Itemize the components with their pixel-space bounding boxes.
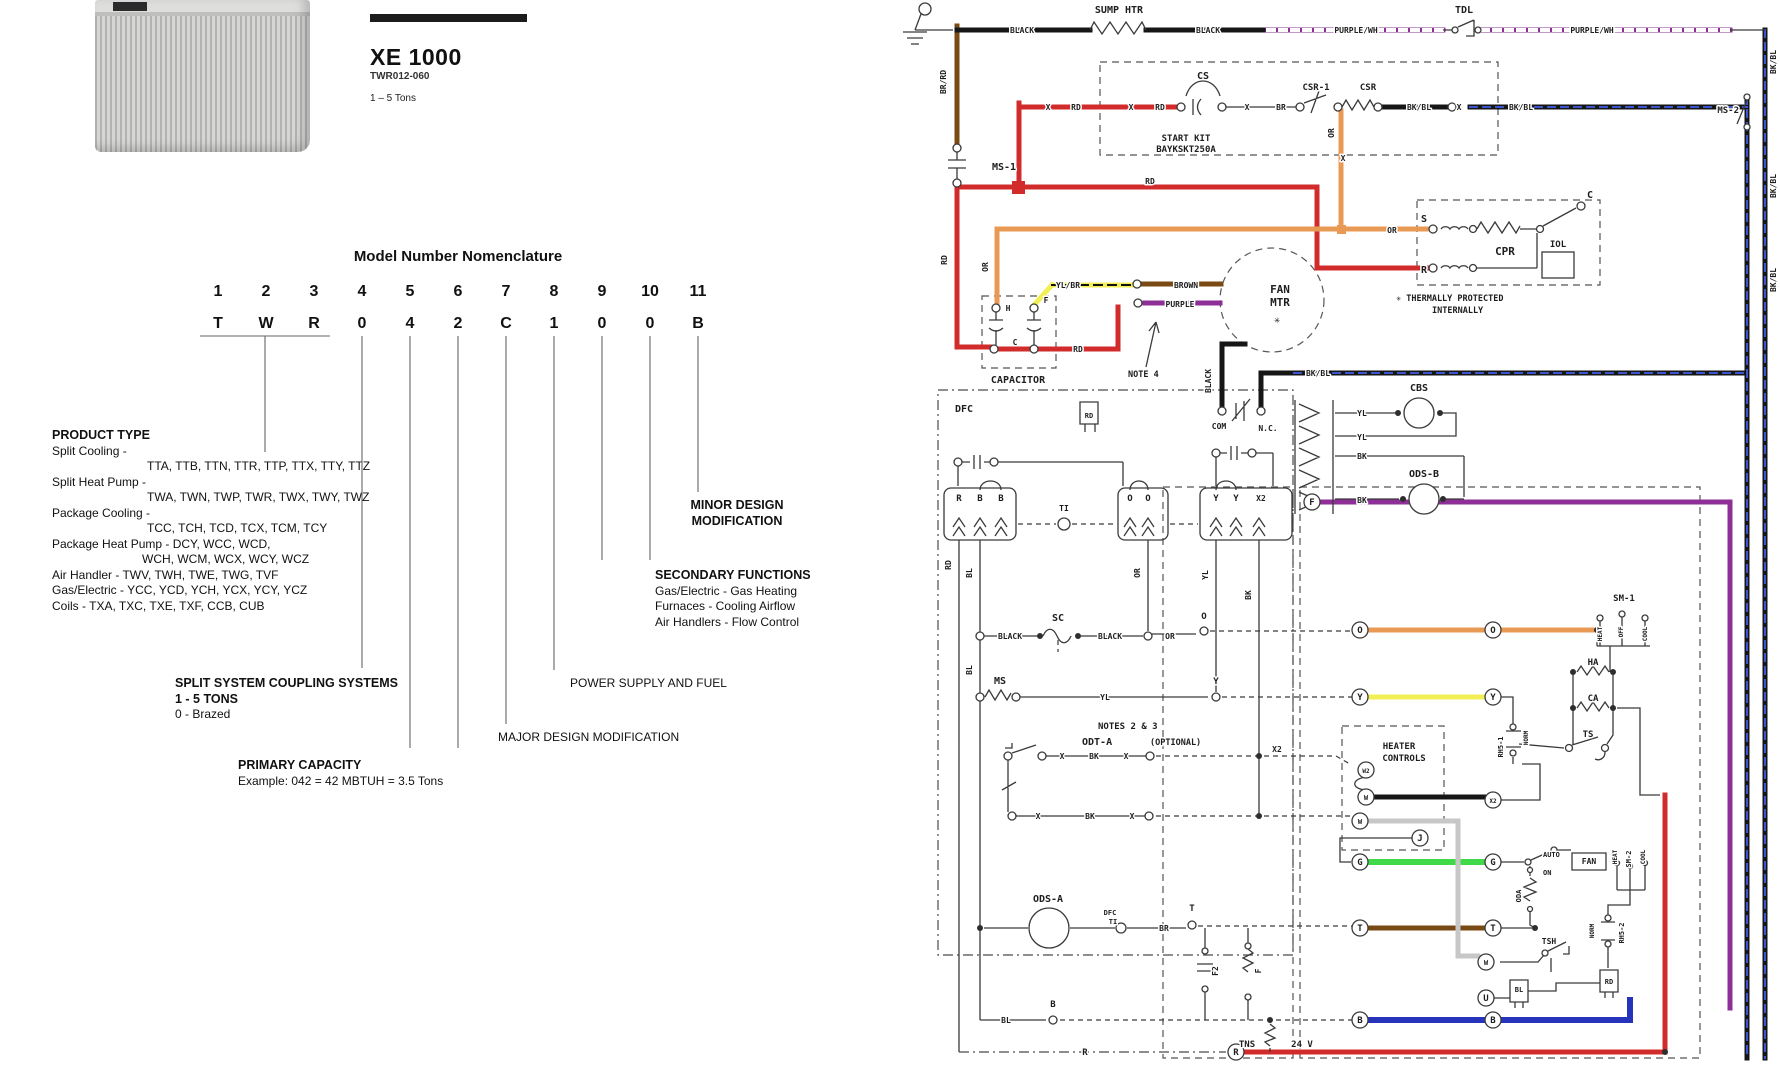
nomenclature-character: C	[500, 315, 512, 332]
diagram-label-iol: IOL	[1550, 240, 1567, 250]
terminal-circle	[1452, 27, 1458, 33]
junction-dot	[1037, 633, 1043, 639]
diagram-label-or: OR	[981, 262, 990, 272]
nomenclature-character: 0	[598, 315, 607, 332]
diagram-label-norm: NORM	[1589, 923, 1596, 938]
diagram-label-fan: FAN	[1582, 857, 1597, 866]
terminal-circle	[1012, 693, 1020, 701]
dfc-box	[938, 390, 1293, 955]
diagram-label-bk: BK	[1085, 812, 1095, 821]
diagram-label-x: X	[1036, 812, 1041, 821]
diagram-label-ca: CA	[1588, 694, 1599, 704]
terminal-circle	[1404, 398, 1434, 428]
diagram-label-purple-wh: PURPLE/WH	[1570, 26, 1614, 35]
terminal-circle	[1374, 103, 1382, 111]
terminal-circle	[1212, 693, 1220, 701]
diagram-label-ts: TS	[1583, 730, 1594, 740]
nomenclature-character: B	[692, 315, 704, 332]
diagram-label-bk-bl: BK/BL	[1509, 103, 1533, 112]
terminal-circle	[1744, 94, 1750, 100]
diagram-label-o: O	[1490, 626, 1496, 636]
terminal-circle	[1146, 752, 1154, 760]
diagram-label-o: O	[1145, 494, 1151, 504]
diagram-label-sm-2: SM-2	[1625, 851, 1633, 868]
diagram-label-x2: X2	[1489, 798, 1497, 805]
power-wires	[957, 26, 1765, 1058]
diagram-label-bk: BK	[1089, 752, 1099, 761]
terminal-circle	[1248, 449, 1256, 457]
wiring-diagram: 1T2W3R4054627C819010011B	[0, 0, 1780, 1066]
diagram-labels: BR/RDBLACKSUMP HTRBLACKPURPLE/WHTDLPURPL…	[939, 5, 1778, 1060]
nomenclature-character: 0	[646, 315, 655, 332]
nomenclature-position-number: 6	[454, 283, 463, 300]
terminal-circle	[1030, 304, 1038, 312]
diagram-label-ha: HA	[1588, 658, 1599, 668]
terminal-circle	[976, 693, 984, 701]
terminal-circle	[1245, 943, 1251, 949]
terminal-circle	[1004, 752, 1012, 760]
diagram-label-tns: TNS	[1239, 1040, 1255, 1050]
nomenclature-character: T	[213, 315, 223, 332]
diagram-label-x2: X2	[1272, 745, 1282, 754]
diagram-label-fan: FAN	[1270, 283, 1290, 296]
diagram-label-cbs: CBS	[1410, 383, 1428, 394]
diagram-label-or: OR	[1165, 632, 1175, 641]
diagram-label-g: G	[1490, 858, 1495, 868]
diagram-label-x: X	[1060, 752, 1065, 761]
terminal-circle	[1525, 859, 1531, 865]
nomenclature-position-number: 3	[310, 283, 319, 300]
nomenclature-character: 0	[358, 315, 367, 332]
diagram-label-ti: TI	[1109, 918, 1117, 926]
diagram-label-x2: X2	[1256, 494, 1266, 503]
terminal-circle	[1218, 407, 1226, 415]
terminal-circle	[1177, 103, 1185, 111]
diagram-label-x: X	[1457, 103, 1462, 112]
diagram-label-bk: BK	[1357, 452, 1367, 461]
diagram-label-yl-br: YL/BR	[1056, 281, 1080, 290]
terminal-circle	[1245, 994, 1251, 1000]
diagram-label-notes-2-3: NOTES 2 & 3	[1098, 722, 1158, 732]
diagram-label-u: U	[1483, 994, 1488, 1004]
nomenclature-position-number: 4	[358, 283, 367, 300]
diagram-label-yl: YL	[1357, 409, 1367, 418]
diagram-label-rh5-2: RH5-2	[1618, 922, 1626, 943]
diagram-label-w2: W2	[1362, 768, 1370, 775]
diagram-label-f: F	[1254, 968, 1263, 973]
diagram-label-yl: YL	[1201, 570, 1210, 580]
diagram-label-tsh: TSH	[1542, 937, 1557, 946]
nomenclature-position-number: 11	[690, 283, 707, 300]
terminal-circle	[990, 458, 998, 466]
diagram-label-odt-a: ODT-A	[1082, 737, 1112, 748]
diagram-label-y: Y	[1357, 693, 1363, 703]
diagram-label-csr: CSR	[1360, 83, 1377, 93]
diagram-label-x: X	[1046, 103, 1051, 112]
diagram-label-y: Y	[1490, 693, 1496, 703]
diagram-label-controls: CONTROLS	[1382, 754, 1425, 764]
junction-dot	[977, 925, 983, 931]
iol-block	[1542, 252, 1574, 278]
diagram-label-ods-a: ODS-A	[1033, 894, 1063, 905]
terminal-circle	[953, 144, 961, 152]
diagram-label-bl: BL	[1515, 986, 1523, 994]
diagram-label-o: O	[1357, 626, 1363, 636]
diagram-label-or: OR	[1387, 226, 1397, 235]
terminal-circle	[1429, 225, 1437, 233]
junction-dot	[1662, 1049, 1668, 1055]
diagram-label-t: T	[1357, 924, 1363, 934]
diagram-label-x: X	[1341, 154, 1346, 163]
diagram-label-baykskt250a: BAYKSKT250A	[1156, 145, 1216, 155]
terminal-circle	[1542, 950, 1548, 956]
diagram-label-x: X	[1245, 103, 1250, 112]
nomenclature-connectors	[200, 336, 698, 748]
diagram-label-black: BLACK	[998, 632, 1022, 641]
diagram-label-bk: BK	[1244, 590, 1253, 600]
diagram-label-black: BLACK	[1204, 369, 1213, 393]
nomenclature-character: R	[308, 315, 320, 332]
terminal-circle	[1510, 750, 1516, 756]
diagram-label-rd: RD	[1071, 103, 1081, 112]
diagram-label-or: OR	[1327, 128, 1336, 138]
diagram-label-r: R	[956, 494, 962, 504]
nomenclature-character: W	[258, 315, 274, 332]
diagram-label-y: Y	[1233, 494, 1239, 504]
diagram-label-br: BR	[1276, 103, 1286, 112]
terminal-circle	[990, 345, 998, 353]
diagram-label-y: Y	[1213, 677, 1219, 687]
diagram-label-x: X	[1129, 103, 1134, 112]
diagram-label-ms-2: MS-2	[1717, 106, 1739, 116]
terminal-circle	[1510, 724, 1516, 730]
terminal-circle	[992, 304, 1000, 312]
diagram-label-cs: CS	[1197, 71, 1209, 82]
diagram-label-off: OFF	[1618, 626, 1625, 637]
terminal-blocks	[944, 488, 1292, 948]
diagram-label-f: F	[1044, 296, 1049, 305]
junction-dot	[1075, 633, 1081, 639]
diagram-label-bk-bl: BK/BL	[1769, 174, 1778, 198]
terminal-circle	[1605, 941, 1611, 947]
diagram-label-ms: MS	[994, 676, 1006, 687]
terminal-circle	[1202, 986, 1208, 992]
junction-dot	[1570, 705, 1576, 711]
terminal-circle	[1030, 345, 1038, 353]
terminal-circle	[1334, 103, 1342, 111]
diagram-label-purple-wh: PURPLE/WH	[1334, 26, 1378, 35]
diagram-label-dfc: DFC	[955, 404, 973, 415]
terminal-circle	[1049, 1016, 1057, 1024]
diagram-label-oda: ODA	[1515, 889, 1523, 902]
diagram-label-bk-bl: BK/BL	[1407, 103, 1431, 112]
diagram-label-b: B	[998, 494, 1004, 504]
diagram-label-h: H	[1006, 304, 1011, 313]
nomenclature-position-number: 1	[214, 283, 223, 300]
nomenclature-position-number: 7	[502, 283, 511, 300]
diagram-label-black: BLACK	[1010, 26, 1034, 35]
diagram-label-bk: BK	[1357, 496, 1367, 505]
diagram-label-heater: HEATER	[1383, 742, 1416, 752]
diagram-label-sc: SC	[1052, 613, 1064, 624]
diagram-label-f2: F2	[1211, 966, 1220, 976]
diagram-label-b: B	[1357, 1016, 1363, 1026]
diagram-label-ti: TI	[1059, 504, 1069, 513]
diagram-label-rd: RD	[1605, 978, 1613, 986]
diagram-label--thermally-protected: ✳ THERMALLY PROTECTED	[1396, 294, 1503, 304]
diagram-label-o: O	[1201, 612, 1207, 622]
nomenclature-position-number: 9	[598, 283, 607, 300]
diagram-label-black: BLACK	[1196, 26, 1220, 35]
terminal-circle	[1470, 265, 1477, 272]
diagram-label-sm-1: SM-1	[1613, 594, 1635, 604]
terminal-circle	[1212, 449, 1220, 457]
nomenclature-character: 4	[406, 315, 415, 332]
diagram-label-bk-bl: BK/BL	[1769, 50, 1778, 74]
junction-dot	[1610, 705, 1616, 711]
diagram-label-bl: BL	[965, 665, 974, 675]
lowvolt-strip-box	[1163, 487, 1293, 1058]
diagram-label-t: T	[1490, 924, 1496, 934]
terminal-circle	[1257, 407, 1265, 415]
junction-dot	[1395, 410, 1401, 416]
diagram-label-mtr: MTR	[1270, 296, 1290, 309]
terminal-circle	[1188, 921, 1196, 929]
terminal-circle	[1528, 868, 1533, 873]
diagram-label-heat: HEAT	[1612, 849, 1619, 864]
diagram-label-on: ON	[1543, 869, 1551, 877]
terminal-circle	[1296, 103, 1304, 111]
diagram-label-yl: YL	[1100, 693, 1110, 702]
diagram-label-t: T	[1189, 904, 1195, 914]
diagram-label-rd: RD	[1145, 177, 1155, 186]
terminal-circle	[1470, 226, 1477, 233]
diagram-label-bk-bl: BK/BL	[1306, 369, 1330, 378]
nomenclature-position-number: 2	[262, 283, 271, 300]
terminal-circle	[1200, 627, 1208, 635]
junction-dot	[1570, 669, 1576, 675]
diagram-label-x: X	[1130, 812, 1135, 821]
diagram-label--: ✳	[1274, 315, 1280, 326]
nomenclature-position-number: 10	[641, 283, 659, 300]
diagram-label-b: B	[977, 494, 983, 504]
terminal-circle	[919, 3, 931, 15]
diagram-label-or: OR	[1133, 568, 1142, 578]
diagram-label-n-c-: N.C.	[1258, 424, 1277, 433]
terminal-circle	[1134, 299, 1142, 307]
junction-dot	[1256, 813, 1262, 819]
diagram-label-o: O	[1127, 494, 1133, 504]
terminal-circle	[976, 632, 984, 640]
page: { "header": {"model":"XE 1000","model_nu…	[0, 0, 1780, 1066]
diagram-label-sump-htr: SUMP HTR	[1095, 5, 1144, 16]
diagram-label-y: Y	[1213, 494, 1219, 504]
terminal-circle	[1409, 484, 1439, 514]
diagram-label-b: B	[1050, 1000, 1056, 1010]
nomenclature-grid: 1T2W3R4054627C819010011B	[213, 283, 706, 332]
terminal-circle	[1642, 615, 1648, 621]
terminal-circle	[1566, 745, 1573, 752]
diagram-label-rd: RD	[944, 560, 953, 570]
terminal-circle	[954, 458, 962, 466]
diagram-label-f: F	[1309, 498, 1314, 508]
terminal-circle	[1145, 812, 1153, 820]
diagram-label-rd: RD	[1073, 345, 1083, 354]
diagram-label-tdl: TDL	[1455, 5, 1473, 16]
terminal-circle	[1008, 812, 1016, 820]
diagram-label-bl: BL	[1001, 1016, 1011, 1025]
terminal-circle	[1602, 745, 1609, 752]
diagram-label-com: COM	[1212, 422, 1227, 431]
diagram-label-capacitor: CAPACITOR	[991, 375, 1046, 386]
diagram-label-note-4: NOTE 4	[1128, 370, 1159, 380]
terminal-circle	[1597, 615, 1603, 621]
cpr-box	[1417, 200, 1600, 285]
diagram-label-cool: COOL	[1642, 626, 1649, 641]
terminal-circle	[1144, 632, 1152, 640]
diagram-label-rh5-1: RH5-1	[1497, 736, 1505, 757]
diagram-label-bl: BL	[965, 568, 974, 578]
diagram-label-j: J	[1417, 834, 1422, 844]
terminal-circle	[1528, 907, 1533, 912]
terminal-circle	[1744, 124, 1750, 130]
terminal-circle	[1448, 103, 1456, 111]
diagram-label-ms-1: MS-1	[992, 162, 1016, 173]
terminal-circle	[953, 179, 961, 187]
diagram-label-r: R	[1082, 1048, 1088, 1058]
diagram-label-br: BR	[1159, 924, 1169, 933]
nomenclature-character: 2	[454, 315, 463, 332]
diagram-label-internally: INTERNALLY	[1432, 306, 1484, 316]
terminal-circle	[1038, 752, 1046, 760]
diagram-label-br-rd: BR/RD	[939, 70, 948, 94]
diagram-label-c: C	[1013, 338, 1018, 347]
diagram-label-heat: HEAT	[1597, 626, 1604, 641]
diagram-label-csr-1: CSR-1	[1302, 83, 1329, 93]
diagram-label-ods-b: ODS-B	[1409, 469, 1439, 480]
diagram-label-g: G	[1357, 858, 1362, 868]
diagram-label-b: B	[1490, 1016, 1496, 1026]
nomenclature-position-number: 8	[550, 283, 559, 300]
terminal-circle	[1133, 280, 1141, 288]
diagram-label-24-v: 24 V	[1291, 1040, 1313, 1050]
terminal-circle	[1619, 611, 1625, 617]
diagram-label-rd: RD	[940, 255, 949, 265]
diagram-label-black: BLACK	[1098, 632, 1122, 641]
terminal-circle	[1475, 27, 1481, 33]
nomenclature-character: 1	[550, 315, 559, 332]
diagram-label-auto: AUTO	[1543, 851, 1560, 859]
terminal-circle	[1537, 226, 1544, 233]
diagram-label-bk-bl: BK/BL	[1769, 268, 1778, 292]
diagram-label-rd: RD	[1155, 103, 1165, 112]
diagram-label-start-kit: START KIT	[1162, 134, 1211, 144]
terminal-circle	[1202, 948, 1208, 954]
junction-dot	[1610, 669, 1616, 675]
junction-dot	[1267, 1017, 1273, 1023]
terminal-circle	[1218, 103, 1226, 111]
nomenclature-position-number: 5	[406, 283, 415, 300]
diagram-label-dfc: DFC	[1104, 909, 1117, 917]
diagram-label-norm: NORM	[1523, 730, 1530, 745]
diagram-label-cpr: CPR	[1495, 245, 1515, 258]
diagram-label-yl: YL	[1357, 433, 1367, 442]
diagram-label-cool: COOL	[1640, 849, 1647, 864]
junction-dot	[1400, 496, 1406, 502]
junction-dot	[1256, 753, 1262, 759]
terminal-circle	[1605, 915, 1611, 921]
diagram-label-rd: RD	[1085, 412, 1093, 420]
diagram-label-r: R	[1421, 265, 1428, 276]
diagram-label-c: C	[1587, 190, 1593, 201]
diagram-label-purple: PURPLE	[1166, 300, 1195, 309]
diagram-label-s: S	[1421, 214, 1427, 225]
terminal-circle	[1116, 923, 1126, 933]
junction-dot	[1440, 496, 1446, 502]
diagram-label--optional-: (OPTIONAL)	[1150, 738, 1201, 748]
terminal-circle	[1429, 264, 1437, 272]
junction-dot	[1532, 925, 1538, 931]
junction-dot	[1437, 410, 1443, 416]
diagram-label-x: X	[1124, 752, 1129, 761]
diagram-label-brown: BROWN	[1174, 281, 1198, 290]
terminal-circle	[1577, 202, 1585, 210]
